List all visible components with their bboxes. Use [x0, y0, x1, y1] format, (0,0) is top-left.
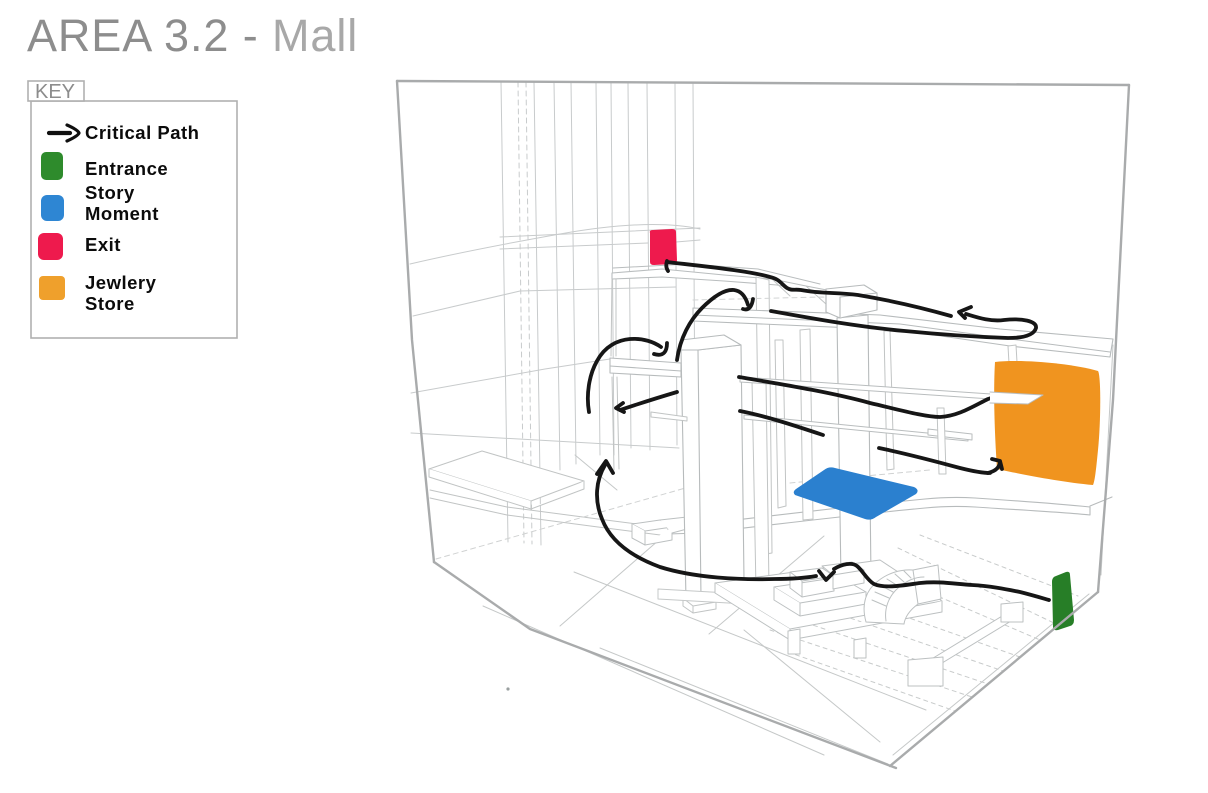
svg-text:AREA 3.2 - Mall: AREA 3.2 - Mall	[27, 10, 358, 61]
svg-text:Jewlery: Jewlery	[85, 272, 157, 293]
svg-text:Story: Story	[85, 182, 135, 203]
svg-text:Critical Path: Critical Path	[85, 122, 199, 143]
svg-text:Exit: Exit	[85, 234, 121, 255]
svg-text:KEY: KEY	[35, 81, 75, 103]
svg-text:Moment: Moment	[85, 203, 159, 224]
svg-text:Store: Store	[85, 293, 135, 314]
svg-text:Entrance: Entrance	[85, 158, 168, 179]
